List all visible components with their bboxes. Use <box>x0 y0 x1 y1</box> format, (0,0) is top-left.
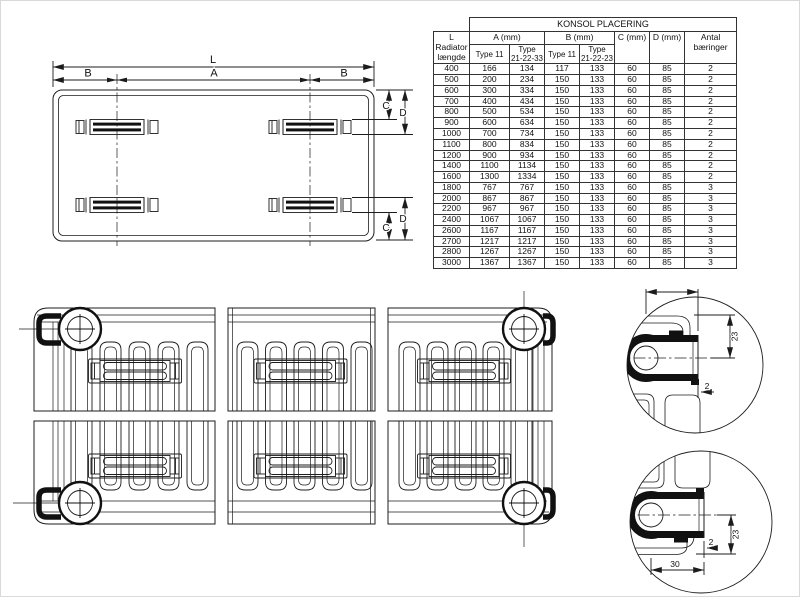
detail-view-top: 30 23 2 <box>602 289 763 439</box>
table-cell: 1267 <box>470 247 510 258</box>
table-cell: 1100 <box>470 161 510 172</box>
table-cell: 133 <box>580 128 615 139</box>
col-header-c: C (mm) <box>615 32 650 64</box>
table-cell: 150 <box>545 193 580 204</box>
table-cell: 85 <box>650 64 685 75</box>
table-cell: 700 <box>434 96 470 107</box>
table-cell: 60 <box>615 107 650 118</box>
boss-bottom-left <box>13 482 101 524</box>
table-cell: 1267 <box>510 247 545 258</box>
table-cell: 400 <box>470 96 510 107</box>
table-cell: 60 <box>615 96 650 107</box>
table-cell: 2 <box>685 85 737 96</box>
table-cell: 133 <box>580 139 615 150</box>
table-cell: 800 <box>470 139 510 150</box>
detail-bottom-dim-30: 30 <box>670 559 680 569</box>
table-cell: 2 <box>685 150 737 161</box>
table-cell: 1067 <box>510 215 545 226</box>
table-cell: 133 <box>580 225 615 236</box>
table-cell: 150 <box>545 172 580 183</box>
table-cell: 2 <box>685 161 737 172</box>
table-cell: 2 <box>685 139 737 150</box>
table-cell: 2 <box>685 75 737 86</box>
table-cell: 2 <box>685 107 737 118</box>
table-cell: 834 <box>510 139 545 150</box>
col-header-d: D (mm) <box>650 32 685 64</box>
table-cell: 700 <box>470 128 510 139</box>
table-corner-blank <box>434 18 470 32</box>
table-cell: 900 <box>470 150 510 161</box>
dim-label-c-top: C <box>382 101 389 112</box>
table-cell: 85 <box>650 182 685 193</box>
table-cell: 800 <box>434 107 470 118</box>
detail-top-dim-30: 30 <box>664 289 674 291</box>
table-cell: 2200 <box>434 204 470 215</box>
col-header-a: A (mm) <box>470 32 545 45</box>
table-cell: 1067 <box>470 215 510 226</box>
boss-top-left <box>19 308 101 350</box>
table-cell: 60 <box>615 172 650 183</box>
section-views-drawing: 30 23 2 <box>1 289 800 597</box>
table-cell: 133 <box>580 85 615 96</box>
col-header-a-type11: Type 11 <box>470 45 510 64</box>
table-cell: 60 <box>615 236 650 247</box>
table-cell: 2 <box>685 96 737 107</box>
table-cell: 60 <box>615 182 650 193</box>
table-cell: 1217 <box>470 236 510 247</box>
dim-label-b-right: B <box>340 68 347 80</box>
table-cell: 85 <box>650 96 685 107</box>
table-cell: 2700 <box>434 236 470 247</box>
table-cell: 500 <box>470 107 510 118</box>
table-cell: 234 <box>510 75 545 86</box>
table-row: 50020023415013360852 <box>434 75 737 86</box>
table-row: 90060063415013360852 <box>434 118 737 129</box>
table-cell: 133 <box>580 75 615 86</box>
dim-label-d-bottom: D <box>399 214 406 225</box>
table-cell: 1217 <box>510 236 545 247</box>
table-cell: 2400 <box>434 215 470 226</box>
table-cell: 934 <box>510 150 545 161</box>
table-cell: 1367 <box>510 258 545 269</box>
table-cell: 133 <box>580 107 615 118</box>
radiator-bracket-placement-sheet: L B A B C D D C KONSOL PLACERING L Radia… <box>0 0 800 597</box>
col-header-a-type213233: Type 21-22-33 <box>510 45 545 64</box>
radiator-panel-middle <box>228 308 375 524</box>
table-cell: 150 <box>545 96 580 107</box>
table-cell: 734 <box>510 128 545 139</box>
table-cell: 900 <box>434 118 470 129</box>
table-cell: 166 <box>470 64 510 75</box>
table-body: 4001661341171336085250020023415013360852… <box>434 64 737 269</box>
dim-label-l: L <box>210 54 216 66</box>
table-cell: 1400 <box>434 161 470 172</box>
table-cell: 150 <box>545 150 580 161</box>
table-cell: 150 <box>545 204 580 215</box>
table-cell: 334 <box>510 85 545 96</box>
dim-label-d-top: D <box>399 108 406 119</box>
table-cell: 600 <box>470 118 510 129</box>
table-cell: 60 <box>615 204 650 215</box>
table-cell: 767 <box>510 182 545 193</box>
table-cell: 60 <box>615 118 650 129</box>
table-cell: 2800 <box>434 247 470 258</box>
table-cell: 967 <box>510 204 545 215</box>
table-cell: 300 <box>470 85 510 96</box>
table-cell: 85 <box>650 258 685 269</box>
table-cell: 3 <box>685 247 737 258</box>
table-row: 14001100113415013360852 <box>434 161 737 172</box>
table-row: 24001067106715013360853 <box>434 215 737 226</box>
table-cell: 3 <box>685 182 737 193</box>
dim-label-b-left: B <box>84 68 91 80</box>
table-cell: 1600 <box>434 172 470 183</box>
table-row: 180076776715013360853 <box>434 182 737 193</box>
table-cell: 133 <box>580 258 615 269</box>
plan-view-drawing: L B A B C D D C <box>1 1 431 291</box>
table-cell: 600 <box>434 85 470 96</box>
table-row: 220096796715013360853 <box>434 204 737 215</box>
table-cell: 133 <box>580 204 615 215</box>
table-cell: 534 <box>510 107 545 118</box>
radiator-panel-right <box>388 291 553 547</box>
table-cell: 2 <box>685 128 737 139</box>
table-cell: 85 <box>650 85 685 96</box>
table-cell: 1367 <box>470 258 510 269</box>
table-cell: 150 <box>545 118 580 129</box>
col-header-b-type212223: Type 21-22-23 <box>580 45 615 64</box>
table-cell: 133 <box>580 150 615 161</box>
table-cell: 200 <box>470 75 510 86</box>
table-title-row: KONSOL PLACERING <box>434 18 737 32</box>
dim-label-a: A <box>210 68 218 80</box>
table-cell: 1300 <box>470 172 510 183</box>
col-header-count: Antal bæringer <box>685 32 737 64</box>
table-cell: 967 <box>470 204 510 215</box>
table-cell: 3 <box>685 215 737 226</box>
dim-label-c-bottom: C <box>382 223 389 234</box>
table-cell: 85 <box>650 118 685 129</box>
table-cell: 85 <box>650 161 685 172</box>
table-cell: 133 <box>580 236 615 247</box>
table-row: 70040043415013360852 <box>434 96 737 107</box>
table-cell: 60 <box>615 215 650 226</box>
table-cell: 1200 <box>434 150 470 161</box>
table-cell: 2 <box>685 118 737 129</box>
table-cell: 60 <box>615 128 650 139</box>
table-cell: 1100 <box>434 139 470 150</box>
table-cell: 85 <box>650 215 685 226</box>
table-row: 26001167116715013360853 <box>434 225 737 236</box>
table-cell: 150 <box>545 128 580 139</box>
table-cell: 1000 <box>434 128 470 139</box>
table-cell: 133 <box>580 96 615 107</box>
table-cell: 767 <box>470 182 510 193</box>
col-header-b-type11: Type 11 <box>545 45 580 64</box>
table-cell: 117 <box>545 64 580 75</box>
table-cell: 85 <box>650 172 685 183</box>
table-cell: 133 <box>580 64 615 75</box>
table-cell: 150 <box>545 225 580 236</box>
table-cell: 150 <box>545 139 580 150</box>
table-cell: 85 <box>650 107 685 118</box>
table-cell: 150 <box>545 215 580 226</box>
table-cell: 1334 <box>510 172 545 183</box>
table-cell: 134 <box>510 64 545 75</box>
detail-bottom-dim-2: 2 <box>709 537 714 547</box>
table-cell: 634 <box>510 118 545 129</box>
table-row: 100070073415013360852 <box>434 128 737 139</box>
table-cell: 2 <box>685 172 737 183</box>
table-cell: 3 <box>685 193 737 204</box>
table-cell: 150 <box>545 247 580 258</box>
table-cell: 85 <box>650 139 685 150</box>
table-cell: 1167 <box>470 225 510 236</box>
table-group-header-row: L Radiator længde A (mm) B (mm) C (mm) D… <box>434 32 737 45</box>
table-cell: 3 <box>685 236 737 247</box>
table-row: 16001300133415013360852 <box>434 172 737 183</box>
table-cell: 133 <box>580 215 615 226</box>
table-cell: 1167 <box>510 225 545 236</box>
table-row: 120090093415013360852 <box>434 150 737 161</box>
table-cell: 60 <box>615 161 650 172</box>
table-cell: 3 <box>685 204 737 215</box>
table-cell: 150 <box>545 182 580 193</box>
table-cell: 3 <box>685 258 737 269</box>
table-cell: 133 <box>580 172 615 183</box>
detail-top-dim-23: 23 <box>730 332 740 342</box>
boss-bottom-right <box>503 482 553 547</box>
table-cell: 60 <box>615 150 650 161</box>
detail-view-bottom: 2 23 30 <box>607 446 772 593</box>
table-cell: 150 <box>545 107 580 118</box>
table-cell: 60 <box>615 225 650 236</box>
table-cell: 867 <box>510 193 545 204</box>
table-row: 60030033415013360852 <box>434 85 737 96</box>
table-cell: 85 <box>650 236 685 247</box>
detail-top-dim-2: 2 <box>705 381 710 391</box>
table-cell: 150 <box>545 236 580 247</box>
table-title: KONSOL PLACERING <box>470 18 737 32</box>
table-cell: 60 <box>615 247 650 258</box>
table-row: 40016613411713360852 <box>434 64 737 75</box>
table-row: 80050053415013360852 <box>434 107 737 118</box>
table-cell: 2000 <box>434 193 470 204</box>
table-cell: 434 <box>510 96 545 107</box>
table-cell: 1134 <box>510 161 545 172</box>
table-cell: 2 <box>685 64 737 75</box>
table-cell: 85 <box>650 150 685 161</box>
table-cell: 3000 <box>434 258 470 269</box>
table-cell: 60 <box>615 64 650 75</box>
table-cell: 60 <box>615 85 650 96</box>
table-cell: 133 <box>580 193 615 204</box>
col-header-b: B (mm) <box>545 32 615 45</box>
table-cell: 85 <box>650 75 685 86</box>
table-cell: 3 <box>685 225 737 236</box>
radiator-panel-left <box>13 308 215 524</box>
table-cell: 150 <box>545 258 580 269</box>
table-cell: 85 <box>650 204 685 215</box>
table-cell: 85 <box>650 128 685 139</box>
table-row: 28001267126715013360853 <box>434 247 737 258</box>
table-row: 110080083415013360852 <box>434 139 737 150</box>
table-cell: 150 <box>545 75 580 86</box>
table-cell: 150 <box>545 161 580 172</box>
table-cell: 60 <box>615 193 650 204</box>
table-cell: 60 <box>615 139 650 150</box>
table-cell: 867 <box>470 193 510 204</box>
table-row: 200086786715013360853 <box>434 193 737 204</box>
table-cell: 1800 <box>434 182 470 193</box>
table-cell: 85 <box>650 193 685 204</box>
table-cell: 150 <box>545 85 580 96</box>
radiator-outline <box>53 90 374 241</box>
boss-top-right <box>503 291 553 350</box>
konsol-placering-table: KONSOL PLACERING L Radiator længde A (mm… <box>433 17 737 269</box>
table-row: 30001367136715013360853 <box>434 258 737 269</box>
table-cell: 60 <box>615 258 650 269</box>
table-cell: 133 <box>580 161 615 172</box>
col-header-length: L Radiator længde <box>434 32 470 64</box>
table-row: 27001217121715013360853 <box>434 236 737 247</box>
table-cell: 60 <box>615 75 650 86</box>
table-cell: 133 <box>580 247 615 258</box>
table-cell: 85 <box>650 225 685 236</box>
table-cell: 133 <box>580 182 615 193</box>
table-cell: 400 <box>434 64 470 75</box>
detail-bottom-dim-23: 23 <box>731 530 741 540</box>
table-cell: 500 <box>434 75 470 86</box>
table-cell: 85 <box>650 247 685 258</box>
table-cell: 133 <box>580 118 615 129</box>
table-cell: 2600 <box>434 225 470 236</box>
